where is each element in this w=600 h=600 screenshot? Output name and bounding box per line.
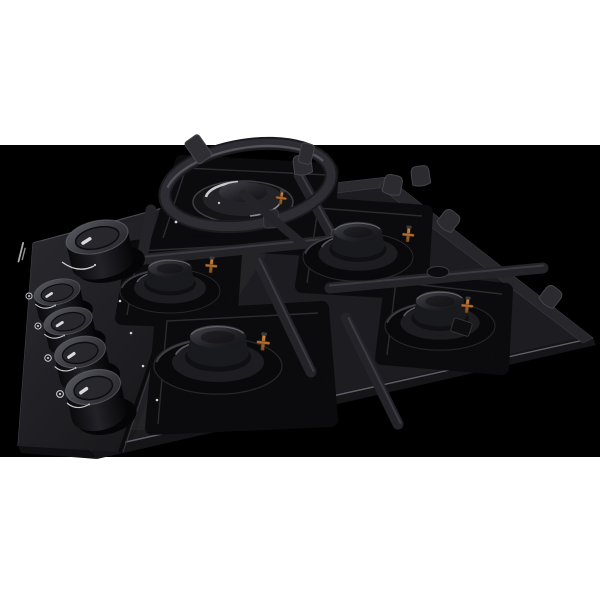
grate-prong: [410, 165, 431, 187]
hob: [17, 114, 596, 459]
grate-prong: [382, 173, 404, 196]
product-photo-canvas: [0, 0, 600, 600]
gas-hob-photo: [0, 0, 600, 600]
glass-port: [427, 267, 449, 278]
brand-marking: [17, 242, 27, 264]
